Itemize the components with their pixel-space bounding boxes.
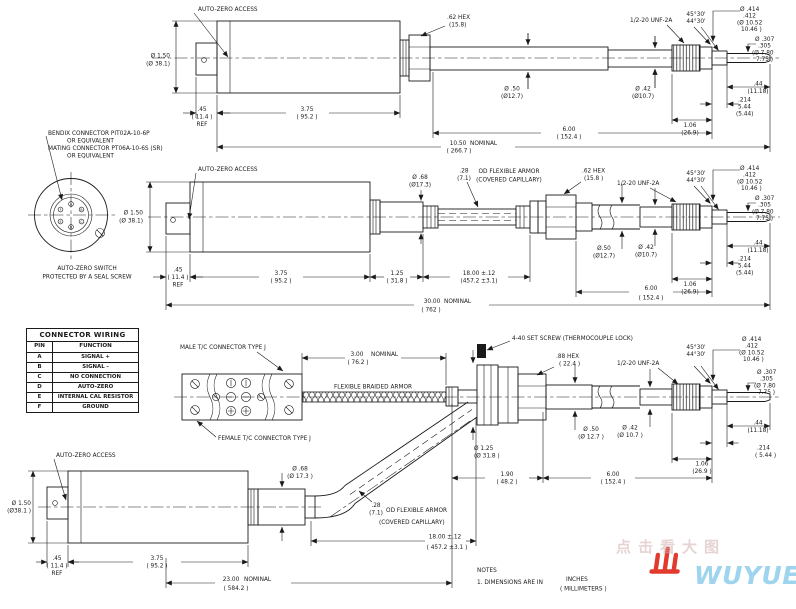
hex-label-in: .88 HEX [556, 354, 579, 360]
dim-fitting-len-in: 1.90 [501, 472, 514, 478]
dim-body-dia-mm: (Ø 38.1) [119, 218, 143, 225]
dim-angle-1: 45°30' [686, 345, 706, 351]
function-cell: SIGNAL + [53, 353, 139, 363]
dim-angle-1: 45°30' [686, 12, 706, 18]
dim-armor-dia-mm: (Ø 17.3 ) [287, 473, 313, 480]
dim-armor-len-mm: ( 457.2 ±3.1 ) [427, 545, 468, 551]
dim-tip-dia-mm1: (Ø 10.52 [737, 20, 763, 27]
dim-body-len-mm: ( 95.2 ) [270, 279, 291, 285]
dim-thread-len-in: 1.06 [684, 123, 697, 129]
male-tc-label: MALE T/C CONNECTOR TYPE J [180, 345, 266, 351]
pin-cell: D [27, 383, 53, 393]
dim-braid-len-tag: NOMINAL [371, 352, 399, 358]
dim-pilot-dia-2: .305 [760, 377, 773, 383]
dim-ref-mm: ( 11.4 ) [191, 115, 212, 121]
dim-angle-2: 44°30' [686, 178, 706, 184]
dim-armor-od-in: .28 [371, 503, 381, 509]
dim-pilot-dia-mm1: (Ø 7.80 [754, 383, 776, 390]
dim-tip-dia-mm2: 10.46 ) [741, 186, 762, 192]
dim-body-dia-mm: (Ø38.1 ) [7, 508, 31, 515]
set-screw-label: 4-40 SET SCREW (THERMOCOUPLE LOCK) [512, 336, 633, 342]
notes-line-1: 1. DIMENSIONS ARE IN [477, 580, 543, 586]
connector-caption-1: AUTO-ZERO SWITCH [57, 266, 116, 272]
dim-ref-in: .45 [173, 268, 183, 274]
dim-armor-len-in: 18.00 ±.12 [429, 535, 462, 541]
dim-ref-mm: ( 11.4 ) [167, 275, 188, 281]
dim-tip-len-mm: (11.18) [747, 248, 768, 254]
dim-body-len-mm: ( 95.2 ) [146, 564, 167, 570]
dim-shaft-dia-in: Ø .42 [622, 425, 638, 432]
pin-cell: F [27, 403, 53, 413]
dim-thread-len-in: 1.06 [684, 282, 697, 288]
dim-probe-len-mm: ( 152.4 ) [639, 296, 664, 302]
dim-ref-tag: REF [51, 571, 62, 577]
hex-label-in: .62 HEX [447, 15, 470, 21]
view-bottom-transducer: AUTO-ZERO ACCESS Ø 1.50 (Ø38.1 ) Ø .68 (… [7, 402, 477, 592]
dim-overall-mm: ( 584.2 ) [224, 586, 249, 592]
dim-tube-dia-in: Ø .50 [504, 86, 520, 93]
connector-wiring-table: CONNECTOR WIRING PIN FUNCTION ASIGNAL + … [26, 328, 139, 413]
dim-tip-dia-mm2: 10.46 ) [743, 357, 764, 363]
dim-pilot-dia-mm1: (Ø 7.80 [752, 209, 774, 216]
dim-pilot-dia-mm2: 7.75 ) [758, 390, 775, 396]
dim-armor-od-mm: (7.1) [457, 176, 471, 182]
dim-step-mm: ( 5.44 ) [755, 453, 776, 459]
dim-overall-in: 23.00 [223, 577, 240, 583]
dim-flange-dia-in: Ø 1.25 [474, 445, 494, 452]
dim-ref-tag: REF [172, 283, 183, 289]
drawing-sheet: AUTO-ZERO ACCESS Ø 1.50 (Ø 38.1) .45 ( 1… [0, 0, 796, 609]
dim-armor-dia-in: Ø .68 [412, 174, 428, 181]
connector-caption-2: PROTECTED BY A SEAL SCREW [42, 275, 131, 281]
dim-angle-2: 44°30' [686, 19, 706, 25]
dim-ref-in: .45 [197, 107, 207, 113]
dim-flange-dia-mm: (Ø 31.8 ) [474, 453, 500, 460]
pin-b: B [80, 208, 82, 212]
notes-units-mm: ( MILLIMETERS ) [560, 587, 607, 593]
dim-thread-len-mm: (26.9) [681, 131, 698, 137]
notes-heading: NOTES [477, 568, 497, 574]
dim-shaft-dia-mm: (Ø10.7) [632, 93, 654, 100]
hex-label-mm: (15.8 ) [584, 176, 603, 182]
dim-overall-mm: ( 762 ) [421, 308, 440, 314]
dim-armor-dia-in: Ø .68 [292, 466, 308, 473]
dim-neck-len-mm: ( 31.8 ) [386, 279, 407, 285]
armor-label-1: OD FLEXIBLE ARMOR [386, 508, 447, 514]
dim-angle-2: 44°30' [686, 352, 706, 358]
technical-drawing-canvas: AUTO-ZERO ACCESS Ø 1.50 (Ø 38.1) .45 ( 1… [0, 0, 796, 609]
dim-pilot-dia-2: .305 [758, 44, 771, 50]
wiring-col-pin: PIN [27, 342, 53, 353]
table-row: EINTERNAL CAL RESISTOR [27, 393, 139, 403]
dim-step-3: (5.44) [736, 112, 753, 118]
dim-tip-dia-1: Ø .414 [740, 6, 760, 13]
dim-shaft-dia-mm: (Ø10.7) [635, 252, 657, 259]
dim-ref-tag: REF [196, 122, 207, 128]
dim-armor-len-mm: (457.2 ±3.1) [460, 279, 497, 285]
thread-label: 1/2-20 UNF-2A [617, 361, 659, 367]
dim-braid-len-mm: ( 76.2 ) [347, 360, 368, 366]
armor-label-2: (COVERED CAPILLARY) [476, 178, 542, 184]
dim-tube-dia-mm: (Ø12.7) [501, 93, 523, 100]
dim-overall-mm: ( 266.7 ) [447, 149, 472, 155]
dim-tip-dia-mm1: (Ø 10.52 [737, 179, 763, 186]
dim-pilot-dia-mm2: 7.75 ) [756, 57, 773, 63]
connector-callout-2: OR EQUIVALENT [67, 139, 114, 145]
dim-shaft-dia-in: Ø .42 [635, 86, 651, 93]
watermark-text: 点击看大图 [616, 536, 726, 557]
dim-tip-len-mm: (11.18) [747, 89, 768, 95]
dim-pilot-dia-1: Ø .307 [757, 369, 777, 376]
function-cell: GROUND [53, 403, 139, 413]
notes-units-inches: INCHES [566, 577, 588, 583]
dim-armor-od-in: .28 [459, 169, 469, 175]
dim-tube-dia-mm: (Ø12.7) [593, 253, 615, 260]
dim-braid-len-in: 3.00 [351, 352, 364, 358]
thread-label: 1/2-20 UNF-2A [630, 18, 672, 24]
dim-step-1: .214 [738, 98, 751, 104]
dim-pilot-dia-1: Ø .307 [755, 195, 775, 202]
dim-thread-len-mm: (26.9) [681, 290, 698, 296]
dim-probe-len-mm: ( 152.4 ) [557, 135, 582, 141]
function-cell: INTERNAL CAL RESISTOR [53, 393, 139, 403]
dim-armor-len-in: 18.00 ±.12 [463, 271, 496, 277]
dim-step-2: 5.44 [738, 105, 751, 111]
dim-tube-dia-in: Ø.50 [597, 245, 611, 252]
pin-e: E [59, 220, 61, 224]
dim-pilot-dia-2: .305 [758, 203, 771, 209]
dim-body-len-in: 3.75 [151, 556, 164, 562]
armor-label-2: (COVERED CAPILLARY) [379, 520, 445, 526]
dim-tip-len-in: .44 [753, 421, 763, 427]
dim-shaft-dia-mm: (Ø 10.7 ) [617, 432, 643, 439]
dim-overall-tag: NOMINAL [244, 577, 272, 583]
dim-overall-tag: NOMINAL [444, 299, 472, 305]
dim-step-1: .214 [738, 257, 751, 263]
dim-body-dia-in: Ø 1.50 [151, 53, 171, 60]
table-row: FGROUND [27, 403, 139, 413]
dim-body-len-mm: ( 95.2 ) [296, 115, 317, 121]
dim-tip-dia-1: Ø .414 [742, 336, 762, 343]
table-row: CNO CONNECTION [27, 373, 139, 383]
dim-pilot-dia-mm1: (Ø 7.80 [752, 50, 774, 57]
view-middle-transducer: AUTO-ZERO ACCESS Ø 1.50 (Ø 38.1) .45 ( 1… [119, 165, 780, 314]
table-row: BSIGNAL - [27, 363, 139, 373]
dim-neck-len-in: 1.25 [391, 271, 404, 277]
notes-block: NOTES 1. DIMENSIONS ARE IN INCHES ( MILL… [477, 568, 607, 593]
pin-cell: B [27, 363, 53, 373]
pin-f: F [60, 208, 62, 212]
dim-overall-in: 10.50 [450, 141, 467, 147]
table-row: DAUTO-ZERO [27, 383, 139, 393]
dim-body-len-in: 3.75 [275, 271, 288, 277]
dim-overall-in: 30.00 [424, 299, 441, 305]
dim-tip-dia-mm1: (Ø 10.52 [739, 350, 765, 357]
dim-step-2: 5.44 [738, 264, 751, 270]
connector-face-detail: A B C D E F BENDIX CONNECTOR PIT02A-10-6… [28, 131, 163, 281]
dim-probe-len-in: 6.00 [645, 286, 658, 292]
wiring-col-function: FUNCTION [53, 342, 139, 353]
function-cell: SIGNAL - [53, 363, 139, 373]
dim-tip-len-mm: (11.18) [747, 428, 768, 434]
thread-label: 1/2-20 UNF-2A [617, 181, 659, 187]
dim-ref-in: .45 [52, 556, 62, 562]
dim-tip-dia-2: .412 [743, 173, 756, 179]
hex-label-mm: (15.8) [449, 23, 466, 29]
dim-body-dia-in: Ø 1.50 [12, 500, 32, 507]
function-cell: NO CONNECTION [53, 373, 139, 383]
dim-probe-len-in: 6.00 [607, 472, 620, 478]
dim-thread-len-mm: (26.9 ) [692, 469, 711, 475]
dim-armor-od-mm: (7.1) [369, 511, 383, 517]
dim-armor-dia-mm: (Ø17.3) [409, 182, 431, 189]
dim-tube-dia-in: Ø .50 [583, 426, 599, 433]
dim-tip-len-in: .44 [753, 241, 763, 247]
dim-shaft-dia-in: Ø .42 [638, 244, 654, 251]
dim-pilot-dia-1: Ø .307 [755, 36, 775, 43]
dim-tip-dia-2: .412 [745, 344, 758, 350]
dim-body-dia-in: Ø 1.50 [124, 210, 144, 217]
braided-armor-label: FLEXIBLE BRAIDED ARMOR [334, 385, 412, 391]
pin-cell: E [27, 393, 53, 403]
dim-thread-len-in: 1.06 [696, 462, 709, 468]
dim-tip-dia-2: .412 [743, 14, 756, 20]
hex-label-in: .62 HEX [582, 169, 605, 175]
auto-zero-label: AUTO-ZERO ACCESS [56, 453, 116, 459]
dim-ref-mm: ( 11.4 ) [46, 564, 67, 570]
dim-tip-dia-mm2: 10.46 ) [741, 27, 762, 33]
dim-angle-1: 45°30' [686, 171, 706, 177]
dim-tip-dia-1: Ø .414 [740, 165, 760, 172]
connector-pins: A B C D E F [58, 202, 84, 230]
function-cell: AUTO-ZERO [53, 383, 139, 393]
connector-callout-3: MATING CONNECTOR PT06A-10-6S (SR) [48, 146, 163, 152]
pin-cell: C [27, 373, 53, 383]
pin-cell: A [27, 353, 53, 363]
dim-pilot-dia-mm2: 7.75 ) [756, 216, 773, 222]
dim-step-in: .214 [757, 446, 770, 452]
dim-probe-len-in: 6.00 [563, 127, 576, 133]
connector-callout-1: BENDIX CONNECTOR PIT02A-10-6P [48, 131, 150, 137]
dim-tube-dia-mm: (Ø 12.7 ) [578, 434, 604, 441]
female-tc-label: FEMALE T/C CONNECTOR TYPE J [218, 436, 311, 442]
auto-zero-label: AUTO-ZERO ACCESS [198, 7, 258, 13]
dim-tip-len-in: .44 [753, 82, 763, 88]
dim-probe-len-mm: ( 152.4 ) [601, 480, 626, 486]
dim-step-3: (5.44) [736, 271, 753, 277]
brand-logo-text: WUYUE [694, 561, 796, 590]
dim-overall-tag: NOMINAL [470, 141, 498, 147]
connector-callout-4: OR EQUIVALENT [67, 154, 114, 160]
dim-body-dia-mm: (Ø 38.1) [146, 61, 170, 68]
view-top-transducer: AUTO-ZERO ACCESS Ø 1.50 (Ø 38.1) .45 ( 1… [146, 6, 780, 155]
wiring-table-title: CONNECTOR WIRING [27, 329, 139, 342]
hex-label-mm: ( 22.4 ) [559, 362, 580, 368]
dim-body-len-in: 3.75 [301, 107, 314, 113]
table-row: ASIGNAL + [27, 353, 139, 363]
dim-fitting-len-mm: ( 48.2 ) [496, 480, 517, 486]
auto-zero-label: AUTO-ZERO ACCESS [198, 167, 258, 173]
armor-label-1: OD FLEXIBLE ARMOR [478, 169, 539, 175]
